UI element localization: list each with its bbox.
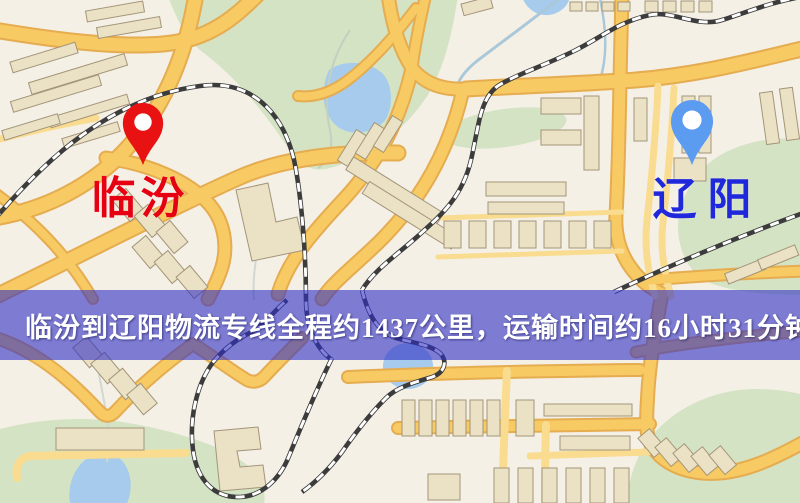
destination-marker[interactable] bbox=[667, 99, 717, 166]
location-pin-icon bbox=[667, 99, 717, 166]
map-canvas bbox=[0, 0, 800, 503]
location-pin-icon bbox=[121, 101, 165, 167]
route-info-banner: 临汾到辽阳物流专线全程约1437公里，运输时间约16小时31分钟. bbox=[0, 290, 800, 360]
route-summary-text: 临汾到辽阳物流专线全程约1437公里，运输时间约16小时31分钟. bbox=[0, 306, 800, 345]
origin-marker[interactable] bbox=[121, 101, 165, 167]
river bbox=[600, 0, 605, 80]
map-view[interactable]: 临汾 辽阳 临汾到辽阳物流专线全程约1437公里，运输时间约16小时31分钟. bbox=[0, 0, 800, 503]
